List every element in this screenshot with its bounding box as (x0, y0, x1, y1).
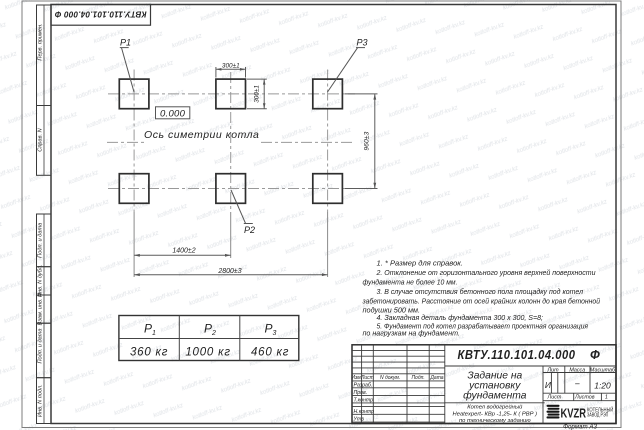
svg-text:460 кг: 460 кг (251, 346, 289, 358)
svg-text:P1: P1 (120, 38, 131, 48)
svg-text:KVZR: KVZR (561, 405, 587, 420)
svg-text:Лист: Лист (547, 395, 562, 401)
svg-text:Инв. N подл.: Инв. N подл. (38, 384, 44, 417)
svg-text:0.000: 0.000 (160, 108, 186, 119)
svg-text:2800±3: 2800±3 (217, 268, 241, 275)
svg-text:300±1: 300±1 (222, 63, 240, 70)
svg-text:N докум.: N докум. (380, 375, 400, 381)
svg-text:3. В случае отсутствия бетонно: 3. В случае отсутствия бетонного пола пл… (377, 287, 584, 296)
svg-text:Перв. примен.: Перв. примен. (38, 23, 44, 60)
svg-text:P2: P2 (244, 225, 255, 235)
svg-text:Взам. инв. N: Взам. инв. N (38, 292, 44, 326)
svg-text:300±1: 300±1 (254, 85, 261, 103)
svg-text:Листов: Листов (574, 395, 595, 401)
svg-text:360 кг: 360 кг (130, 346, 168, 358)
svg-text:1400±2: 1400±2 (172, 248, 195, 255)
svg-text:фундамента: фундамента (463, 389, 527, 401)
svg-text:КВТУ.110.101.04.000 Ф: КВТУ.110.101.04.000 Ф (54, 9, 146, 18)
svg-text:2. Отклонение от горизонтально: 2. Отклонение от горизонтального уровня … (376, 268, 596, 277)
svg-text:Ось симетрии котла: Ось симетрии котла (144, 129, 260, 141)
svg-text:960±3: 960±3 (363, 132, 370, 151)
svg-text:фундамента не более 10 мм.: фундамента не более 10 мм. (363, 278, 458, 287)
svg-text:1: 1 (605, 395, 608, 401)
svg-text:Подп. и дата: Подп. и дата (38, 328, 44, 363)
svg-text:И: И (545, 380, 552, 390)
svg-text:Лист: Лист (360, 375, 374, 381)
svg-text:по техническому заданию: по техническому заданию (459, 418, 531, 424)
svg-text:по нагрузкам на фундамент.: по нагрузкам на фундамент. (363, 329, 461, 338)
svg-text:ЗАВОД РЭП: ЗАВОД РЭП (587, 413, 609, 419)
svg-text:Н.контр: Н.контр (354, 409, 375, 415)
svg-text:P3: P3 (357, 38, 368, 48)
svg-text:1000 кг: 1000 кг (185, 346, 230, 358)
svg-text:Ф: Ф (590, 348, 600, 362)
svg-text:Дата: Дата (429, 375, 443, 381)
svg-text:Формат А3: Формат А3 (563, 424, 597, 430)
svg-text:забетонировать. Расстояние от: забетонировать. Расстояние от осей крайн… (362, 297, 600, 306)
svg-text:Масса: Масса (569, 368, 585, 374)
svg-text:Лит: Лит (546, 368, 559, 374)
svg-text:Масштаб: Масштаб (590, 368, 616, 374)
svg-text:1. * Размер для справок.: 1. * Размер для справок. (377, 259, 464, 268)
svg-text:Heatexpert- КВр -1,25- К ( РВР: Heatexpert- КВр -1,25- К ( РВР ) (453, 411, 538, 417)
svg-text:–: – (574, 379, 580, 388)
svg-text:Подп. и дата: Подп. и дата (38, 223, 44, 258)
svg-text:Утв: Утв (354, 417, 365, 423)
svg-text:Инв. N дубл.: Инв. N дубл. (38, 265, 44, 297)
svg-text:КВТУ.110.101.04.000: КВТУ.110.101.04.000 (458, 348, 576, 362)
svg-text:Т.контр: Т.контр (354, 397, 374, 403)
svg-text:Разраб.: Разраб. (354, 382, 373, 388)
svg-text:1:20: 1:20 (594, 380, 611, 390)
svg-text:Котел водогрейный: Котел водогрейный (467, 403, 523, 410)
svg-text:Подп.: Подп. (411, 375, 424, 381)
svg-text:Справ. N: Справ. N (38, 127, 44, 151)
svg-text:Пров.: Пров. (354, 390, 368, 396)
